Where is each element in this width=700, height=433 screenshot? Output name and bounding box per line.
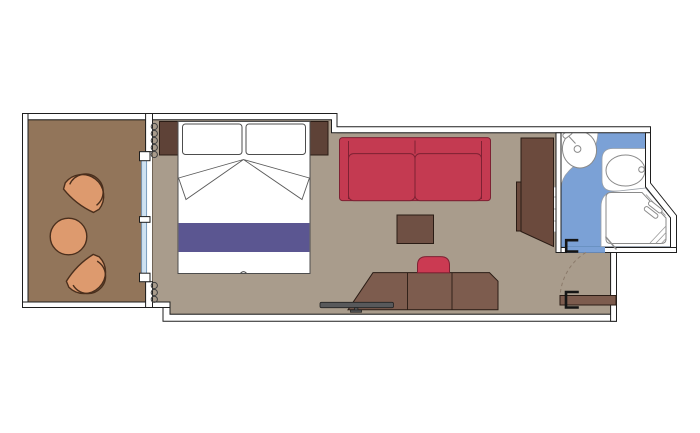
wardrobe-body <box>521 138 554 247</box>
floor-plan <box>0 0 700 433</box>
coffee-table <box>397 215 434 244</box>
tv-screen-bar <box>320 302 394 307</box>
door-jamb-bottom <box>140 273 151 282</box>
balcony-round-table <box>50 218 87 255</box>
sofa-cushion-right <box>415 154 482 201</box>
toilet <box>606 155 645 186</box>
floor-plan-canvas <box>0 0 700 433</box>
nightstand-right <box>310 122 329 156</box>
bed-runner <box>179 223 310 252</box>
desk-chair <box>418 257 450 273</box>
bathroom-left-wall <box>556 133 561 253</box>
entrance-door <box>560 296 616 306</box>
door-jamb-middle <box>140 217 151 223</box>
pillow-left <box>183 124 243 155</box>
sofa-cushion-left <box>349 154 416 201</box>
double-bed <box>178 122 310 274</box>
washbasin-drain <box>574 146 581 153</box>
wardrobe-side-panel <box>517 182 522 231</box>
pillow-right <box>246 124 306 155</box>
wardrobe <box>517 138 554 247</box>
toilet-flush-button <box>639 167 645 173</box>
entry-right-wall <box>611 253 617 322</box>
door-jamb-top <box>140 152 151 161</box>
balcony-left-wall <box>23 114 29 308</box>
nightstand-left <box>160 122 179 156</box>
tv-stand-base <box>351 310 362 312</box>
sofa <box>340 138 491 201</box>
